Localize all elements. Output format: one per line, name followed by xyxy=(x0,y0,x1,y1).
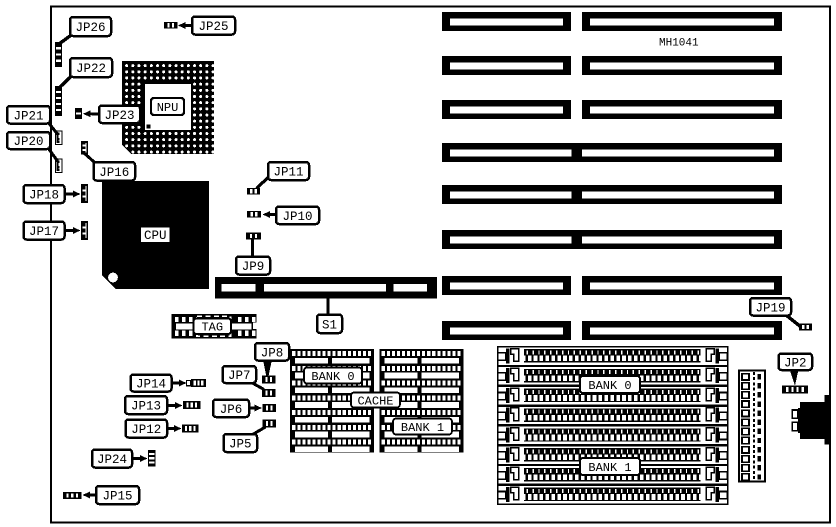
svg-text:JP21: JP21 xyxy=(13,109,43,123)
svg-text:NPU: NPU xyxy=(157,101,179,115)
svg-text:JP18: JP18 xyxy=(29,189,59,203)
svg-text:BANK 0: BANK 0 xyxy=(311,370,354,384)
svg-text:JP19: JP19 xyxy=(755,301,785,315)
svg-text:JP17: JP17 xyxy=(29,225,59,239)
svg-text:JP24: JP24 xyxy=(97,453,127,467)
svg-text:CPU: CPU xyxy=(144,229,167,243)
svg-text:JP6: JP6 xyxy=(220,403,243,417)
svg-text:JP20: JP20 xyxy=(13,135,43,149)
svg-text:JP7: JP7 xyxy=(228,369,251,383)
svg-text:JP11: JP11 xyxy=(273,166,303,180)
svg-text:JP9: JP9 xyxy=(242,260,265,274)
svg-text:JP16: JP16 xyxy=(99,166,129,180)
svg-text:BANK 0: BANK 0 xyxy=(588,379,631,393)
svg-text:JP2: JP2 xyxy=(784,356,807,370)
svg-text:JP8: JP8 xyxy=(261,346,284,360)
svg-text:JP14: JP14 xyxy=(136,378,166,392)
svg-text:JP25: JP25 xyxy=(198,20,228,34)
svg-text:JP22: JP22 xyxy=(76,62,106,76)
svg-text:TAG: TAG xyxy=(201,321,223,335)
svg-text:JP10: JP10 xyxy=(282,210,312,224)
svg-text:JP5: JP5 xyxy=(229,438,252,452)
svg-text:S1: S1 xyxy=(322,318,337,332)
svg-text:JP13: JP13 xyxy=(131,400,161,414)
svg-text:JP23: JP23 xyxy=(104,109,134,123)
svg-text:JP15: JP15 xyxy=(102,490,132,504)
svg-text:JP26: JP26 xyxy=(75,21,105,35)
svg-text:CACHE: CACHE xyxy=(357,394,393,408)
svg-text:BANK 1: BANK 1 xyxy=(588,461,631,475)
svg-text:MH1041: MH1041 xyxy=(659,38,699,50)
svg-text:BANK 1: BANK 1 xyxy=(401,421,444,435)
svg-text:JP12: JP12 xyxy=(131,423,161,437)
